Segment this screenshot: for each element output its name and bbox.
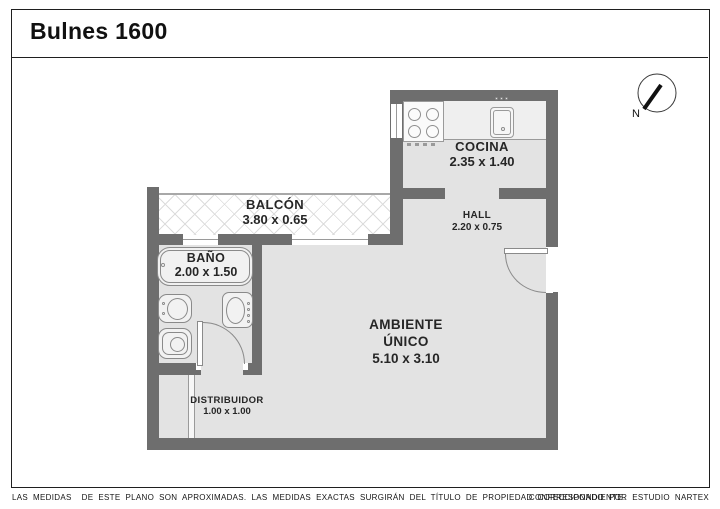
- kitchen-sink-drain: [501, 127, 505, 131]
- kitchen-sink: [490, 107, 514, 138]
- bathroom-sink: [222, 292, 253, 328]
- room-dims: 1.00 x 1.00: [172, 406, 282, 417]
- bathroom-sink-basin: [226, 297, 245, 324]
- wall-segment: [546, 90, 558, 247]
- room-label-ambiente-unico: AMBIENTE ÚNICO 5.10 x 3.10: [346, 316, 466, 367]
- room-label-cocina: COCINA 2.35 x 1.40: [422, 140, 542, 169]
- room-dims: 3.80 x 0.65: [215, 212, 335, 227]
- room-label-bano: BAÑO 2.00 x 1.50: [160, 251, 252, 279]
- credit-text: CONFECCIONADO POR ESTUDIO NARTEX: [529, 493, 709, 502]
- room-name: BAÑO: [160, 251, 252, 265]
- window-glass-line: [183, 239, 218, 240]
- room-dims: 2.35 x 1.40: [422, 155, 542, 170]
- toilet-bowl: [170, 337, 185, 352]
- bidet-bowl: [167, 298, 188, 320]
- stove-burner-icon: [426, 108, 439, 121]
- kitchen-window: [391, 104, 402, 138]
- stove-burner-icon: [426, 125, 439, 138]
- stove-burner-icon: [408, 108, 421, 121]
- entry-door-leaf: [504, 248, 548, 254]
- bidet-tap-dot: [162, 302, 165, 305]
- sink-tap-dot: [247, 320, 250, 323]
- door-jamb: [243, 363, 248, 370]
- room-name: BALCÓN: [215, 197, 335, 212]
- room-dims: 2.20 x 0.75: [427, 222, 527, 234]
- room-name: DISTRIBUIDOR: [172, 395, 282, 406]
- bidet-tap-dot: [162, 312, 165, 315]
- sink-tap-dot: [247, 314, 250, 317]
- sink-tap-dot: [247, 302, 250, 305]
- door-jamb: [546, 288, 553, 293]
- faucet-dot: [505, 97, 508, 100]
- toilet: [158, 328, 192, 359]
- room-label-hall: HALL 2.20 x 0.75: [427, 210, 527, 234]
- room-dims: 5.10 x 3.10: [346, 350, 466, 367]
- wall-segment: [147, 363, 201, 375]
- bathroom-window: [183, 235, 218, 244]
- stove-knob: [415, 143, 419, 146]
- wall-segment: [252, 234, 262, 365]
- room-label-distribuidor: DISTRIBUIDOR 1.00 x 1.00: [172, 395, 282, 417]
- bathroom-door-leaf: [197, 321, 203, 366]
- title-bar: Bulnes 1600: [11, 9, 708, 58]
- window-glass-line: [396, 104, 397, 138]
- compass-north-label: N: [632, 108, 640, 120]
- room-name: AMBIENTE: [346, 316, 466, 333]
- faucet-dot: [500, 97, 503, 100]
- compass-needle: [644, 85, 661, 109]
- room-label-balcon: BALCÓN 3.80 x 0.65: [215, 197, 335, 227]
- wall-segment: [147, 187, 159, 450]
- stove: [403, 101, 444, 142]
- plan-title: Bulnes 1600: [30, 18, 168, 45]
- wall-segment: [390, 90, 558, 101]
- stove-burner-icon: [408, 125, 421, 138]
- kitchen-sink-basin: [493, 110, 511, 135]
- wall-segment: [147, 234, 183, 245]
- room-dims: 2.00 x 1.50: [160, 265, 252, 279]
- bidet: [158, 294, 192, 323]
- north-compass-icon: N: [628, 66, 688, 124]
- main-room-window: [292, 235, 368, 244]
- faucet-dot: [495, 97, 498, 100]
- wall-segment: [368, 234, 403, 245]
- wall-segment: [147, 438, 558, 450]
- window-glass-line: [292, 239, 368, 240]
- room-name: ÚNICO: [346, 333, 466, 350]
- sink-tap-dot: [247, 308, 250, 311]
- wall-segment: [499, 188, 558, 199]
- wall-segment: [546, 292, 558, 450]
- wall-segment: [390, 188, 445, 199]
- room-name: HALL: [427, 210, 527, 222]
- room-name: COCINA: [422, 140, 542, 155]
- stove-knob: [407, 143, 411, 146]
- footer: LAS MEDIDAS DE ESTE PLANO SON APROXIMADA…: [0, 493, 720, 507]
- floor-plan-page: Bulnes 1600: [0, 0, 720, 509]
